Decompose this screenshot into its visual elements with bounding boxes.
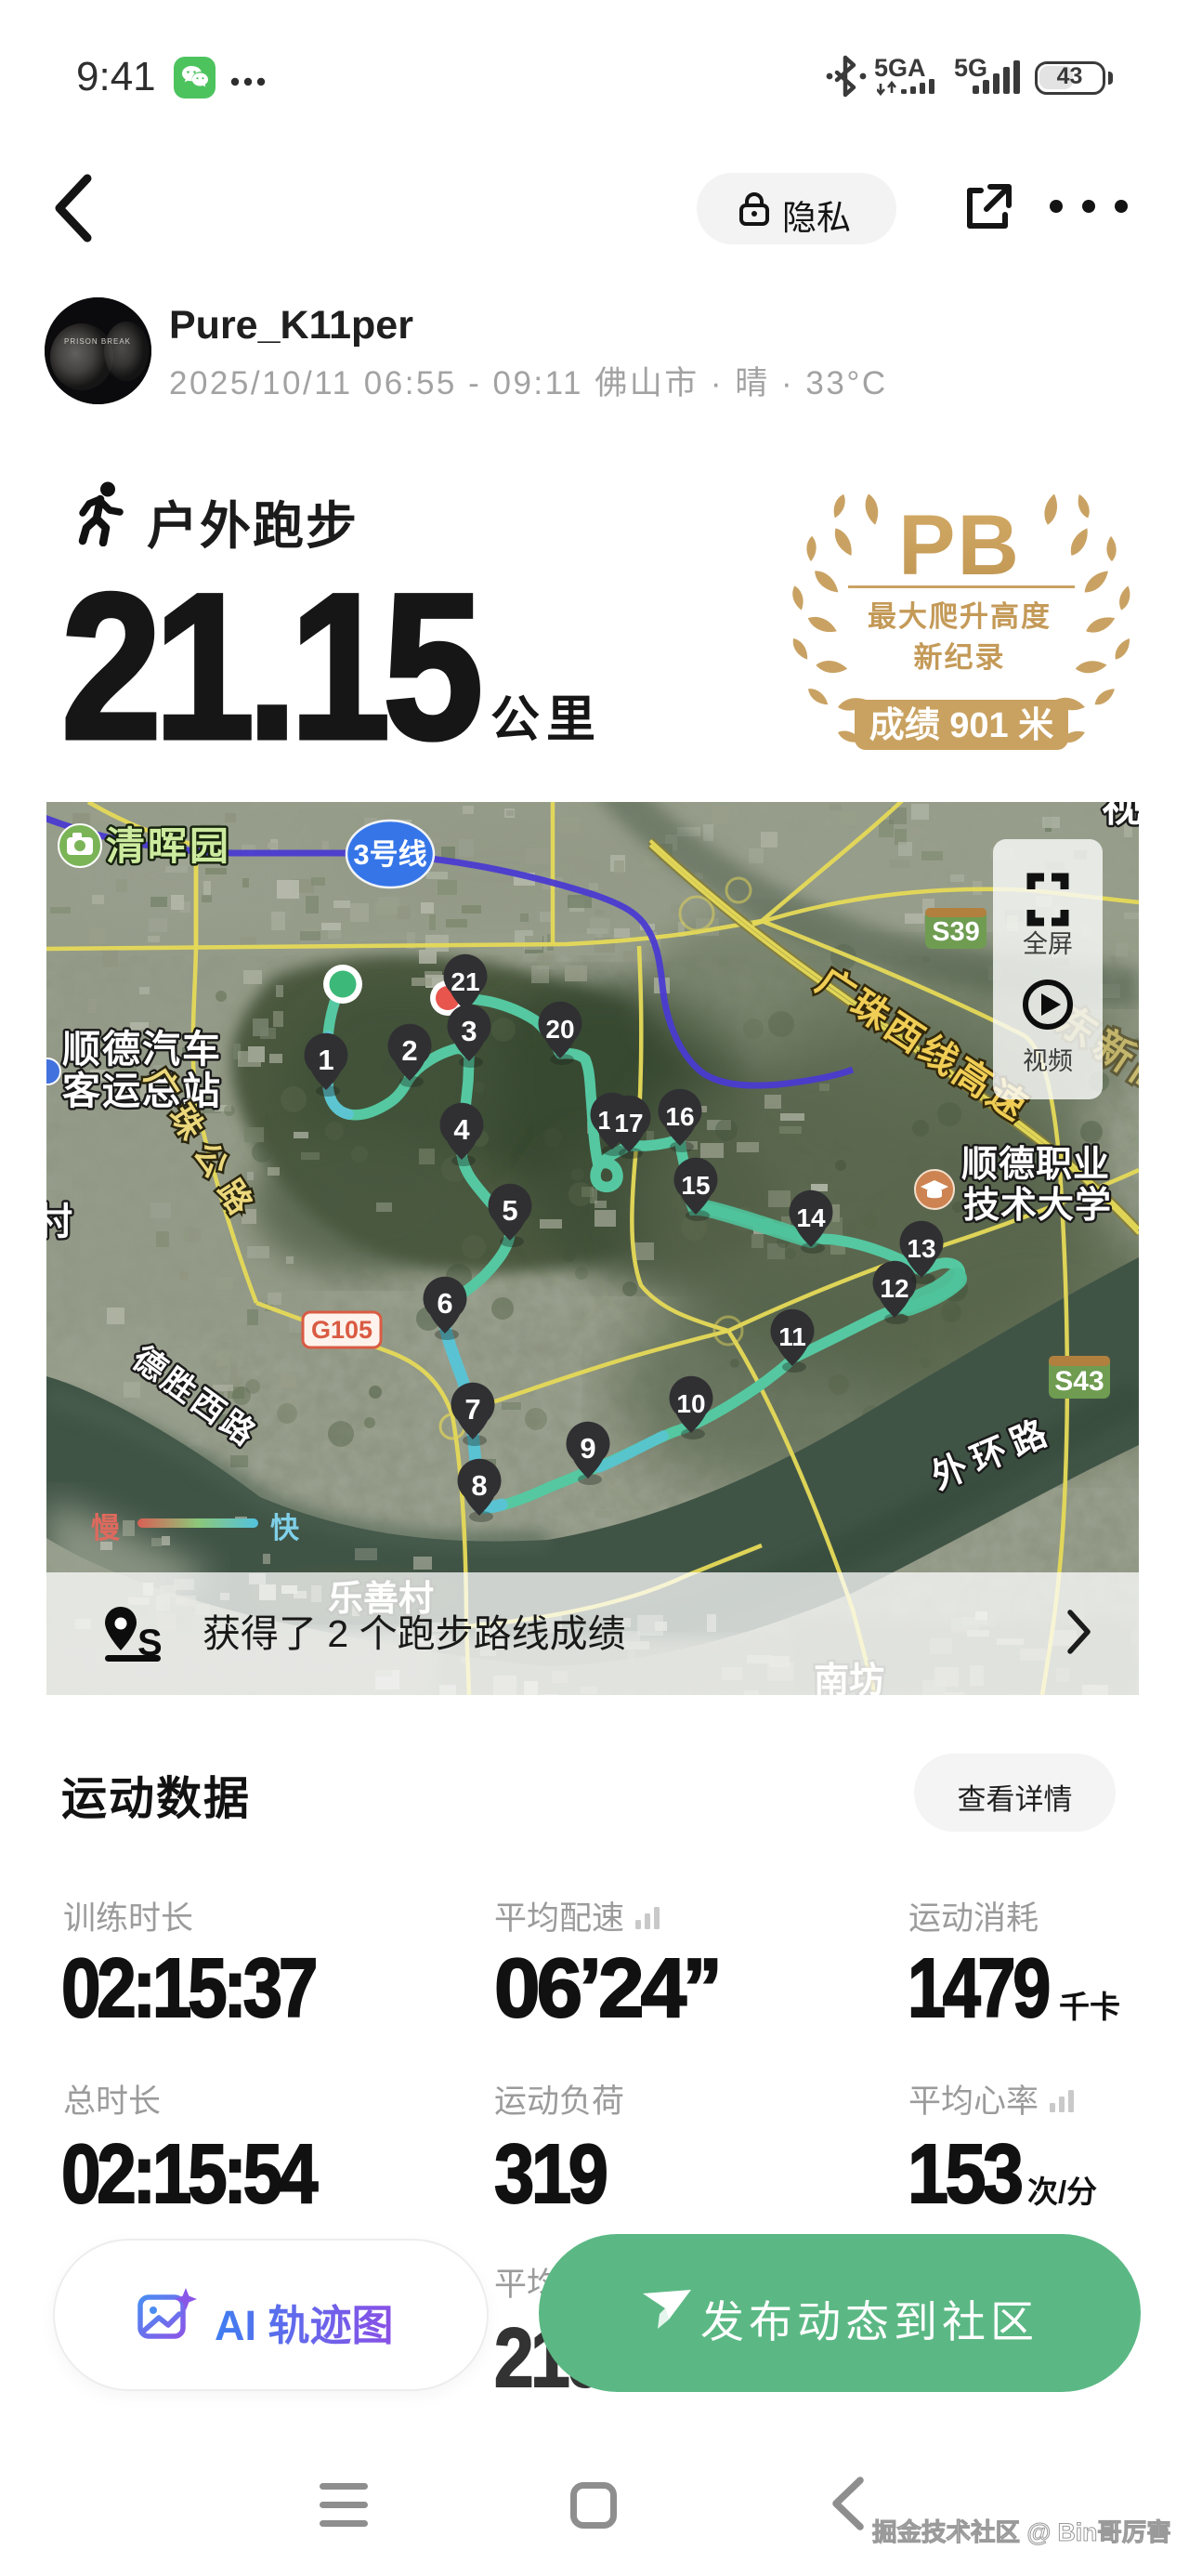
svg-text:S39: S39	[932, 917, 980, 947]
svg-text:13: 13	[907, 1234, 935, 1263]
svg-text:3: 3	[461, 1015, 477, 1047]
svg-text:14: 14	[796, 1203, 826, 1232]
svg-text:获得了 2 个跑步路线成绩: 获得了 2 个跑步路线成绩	[203, 1612, 626, 1655]
svg-text:全屏: 全屏	[1023, 930, 1073, 958]
svg-text:7: 7	[464, 1393, 480, 1426]
svg-text:5: 5	[502, 1194, 517, 1227]
svg-text:慢: 慢	[91, 1512, 121, 1544]
svg-text:16: 16	[665, 1102, 694, 1131]
svg-text:2: 2	[401, 1034, 417, 1067]
svg-text:村: 村	[46, 1202, 72, 1242]
svg-text:新纪录: 新纪录	[914, 641, 1006, 674]
svg-text:快: 快	[270, 1512, 300, 1544]
svg-text:17: 17	[614, 1109, 643, 1137]
svg-text:最大爬升高度: 最大爬升高度	[868, 600, 1052, 633]
svg-text:视频: 视频	[1023, 1047, 1073, 1075]
svg-text:技术大学: 技术大学	[963, 1186, 1112, 1226]
svg-text:20: 20	[545, 1015, 574, 1044]
svg-text:顺德汽车: 顺德汽车	[62, 1028, 222, 1071]
svg-text:12: 12	[880, 1274, 908, 1303]
svg-text:9: 9	[580, 1432, 595, 1465]
svg-text:G105: G105	[311, 1316, 372, 1344]
svg-text:11: 11	[778, 1322, 806, 1351]
svg-text:视: 视	[1102, 802, 1139, 830]
svg-text:10: 10	[676, 1389, 705, 1418]
svg-text:1: 1	[318, 1044, 333, 1076]
svg-text:清晖园: 清晖园	[106, 824, 231, 868]
svg-text:21: 21	[451, 967, 479, 996]
svg-text:8: 8	[471, 1469, 487, 1502]
svg-text:顺德职业: 顺德职业	[961, 1145, 1110, 1185]
svg-text:S43: S43	[1054, 1366, 1104, 1397]
svg-text:6: 6	[437, 1287, 452, 1320]
svg-text:PB: PB	[898, 498, 1021, 593]
svg-text:成绩 901 米: 成绩 901 米	[869, 706, 1054, 745]
svg-text:3号线: 3号线	[353, 838, 426, 871]
svg-text:PRISON BREAK: PRISON BREAK	[64, 337, 131, 346]
svg-text:4: 4	[453, 1113, 470, 1146]
svg-text:15: 15	[681, 1171, 710, 1200]
